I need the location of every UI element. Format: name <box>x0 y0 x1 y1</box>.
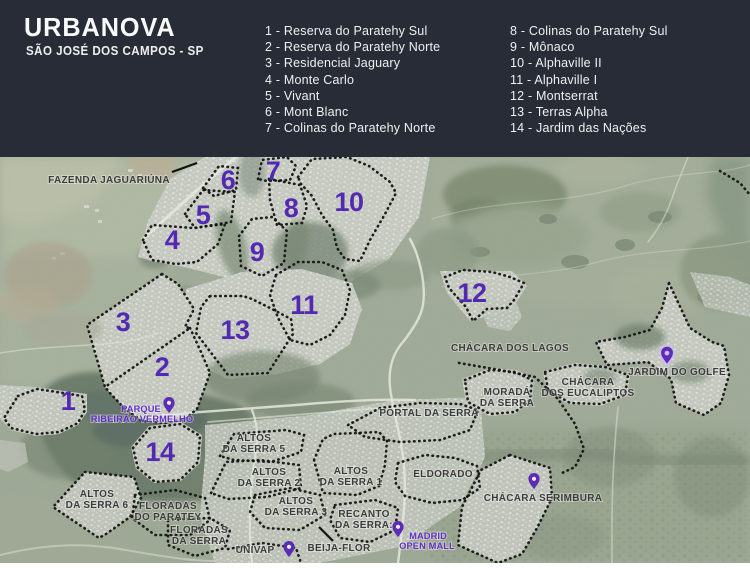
svg-text:MORADÁDA SERRA: MORADÁDA SERRA <box>480 385 534 409</box>
svg-text:7: 7 <box>266 157 281 186</box>
svg-text:ELDORADO: ELDORADO <box>413 469 473 480</box>
svg-text:10: 10 <box>334 187 363 217</box>
svg-text:2: 2 <box>155 352 170 382</box>
svg-text:6: 6 <box>221 165 236 195</box>
svg-text:JARDIM DO GOLFE: JARDIM DO GOLFE <box>628 367 726 378</box>
svg-text:FLORADASDO PARATEY: FLORADASDO PARATEY <box>134 501 201 523</box>
svg-text:CHÁCARA SERIMBURA: CHÁCARA SERIMBURA <box>484 491 603 504</box>
svg-text:CHÁCARA DOS LAGOS: CHÁCARA DOS LAGOS <box>451 341 569 354</box>
svg-text:5: 5 <box>196 200 211 230</box>
svg-text:UNIVAP: UNIVAP <box>236 545 275 556</box>
svg-text:BEIJA-FLOR: BEIJA-FLOR <box>308 543 371 554</box>
svg-text:12: 12 <box>457 278 486 308</box>
svg-text:9: 9 <box>250 237 265 267</box>
svg-text:4: 4 <box>165 225 180 255</box>
svg-text:11: 11 <box>290 290 318 320</box>
svg-text:PORTAL DA SERRA: PORTAL DA SERRA <box>379 408 478 419</box>
svg-text:RECANTODA SERRA:: RECANTODA SERRA: <box>335 509 393 531</box>
svg-text:1: 1 <box>61 386 76 416</box>
svg-text:8: 8 <box>284 193 299 223</box>
svg-text:FLORADASDA SERRA: FLORADASDA SERRA <box>170 525 228 547</box>
svg-text:13: 13 <box>220 315 250 345</box>
svg-text:3: 3 <box>116 307 131 337</box>
svg-text:14: 14 <box>145 437 175 467</box>
svg-text:FAZENDA JAGUARIÚNA: FAZENDA JAGUARIÚNA <box>48 173 170 186</box>
